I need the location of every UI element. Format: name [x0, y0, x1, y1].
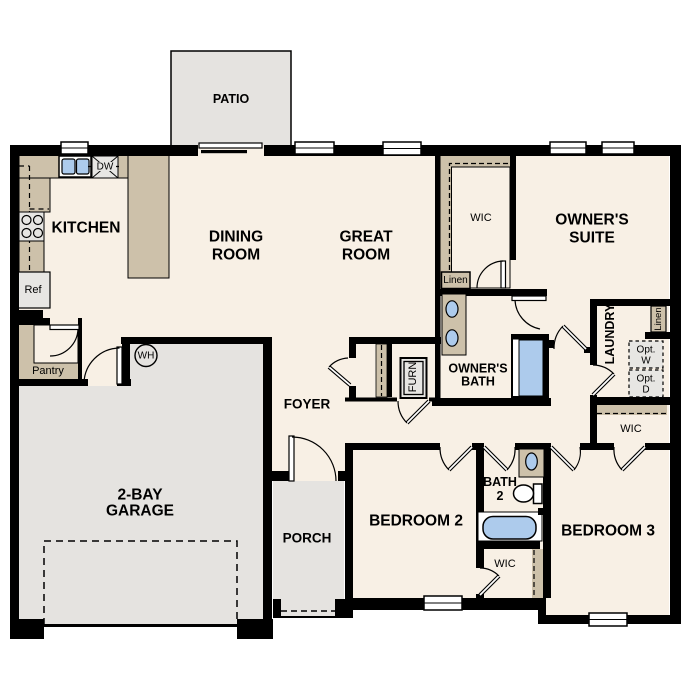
svg-text:2: 2 [497, 489, 504, 503]
svg-text:BEDROOM 2: BEDROOM 2 [369, 513, 463, 530]
svg-text:Pantry: Pantry [32, 365, 64, 377]
svg-text:WIC: WIC [470, 212, 491, 224]
svg-text:PATIO: PATIO [213, 92, 250, 106]
svg-text:Ref: Ref [24, 284, 42, 296]
svg-text:D: D [642, 385, 649, 396]
svg-text:GARAGE: GARAGE [106, 503, 174, 520]
svg-text:WIC: WIC [620, 423, 641, 435]
svg-text:Linen: Linen [443, 275, 467, 286]
svg-text:ROOM: ROOM [342, 247, 390, 264]
svg-text:W: W [641, 356, 651, 367]
svg-text:ROOM: ROOM [212, 247, 260, 264]
svg-text:SUITE: SUITE [569, 230, 615, 247]
svg-text:KITCHEN: KITCHEN [52, 220, 121, 237]
svg-text:2-BAY: 2-BAY [117, 487, 163, 504]
svg-text:Opt.: Opt. [637, 374, 656, 385]
svg-text:OWNER'S: OWNER'S [448, 362, 507, 376]
svg-text:BEDROOM 3: BEDROOM 3 [561, 523, 655, 540]
svg-text:PORCH: PORCH [283, 531, 332, 546]
svg-text:GREAT: GREAT [339, 229, 393, 246]
svg-text:LAUNDRY: LAUNDRY [603, 303, 617, 364]
svg-text:DINING: DINING [209, 229, 263, 246]
svg-text:WH: WH [138, 351, 155, 362]
svg-text:BATH: BATH [461, 375, 495, 389]
svg-text:FOYER: FOYER [284, 397, 331, 412]
svg-text:OWNER'S: OWNER'S [555, 212, 628, 229]
svg-text:Opt.: Opt. [637, 345, 656, 356]
svg-text:Linen: Linen [653, 307, 664, 330]
svg-text:DW: DW [97, 162, 114, 173]
svg-text:FURN: FURN [407, 362, 419, 393]
svg-text:BATH: BATH [483, 475, 517, 489]
svg-text:WIC: WIC [494, 558, 515, 570]
